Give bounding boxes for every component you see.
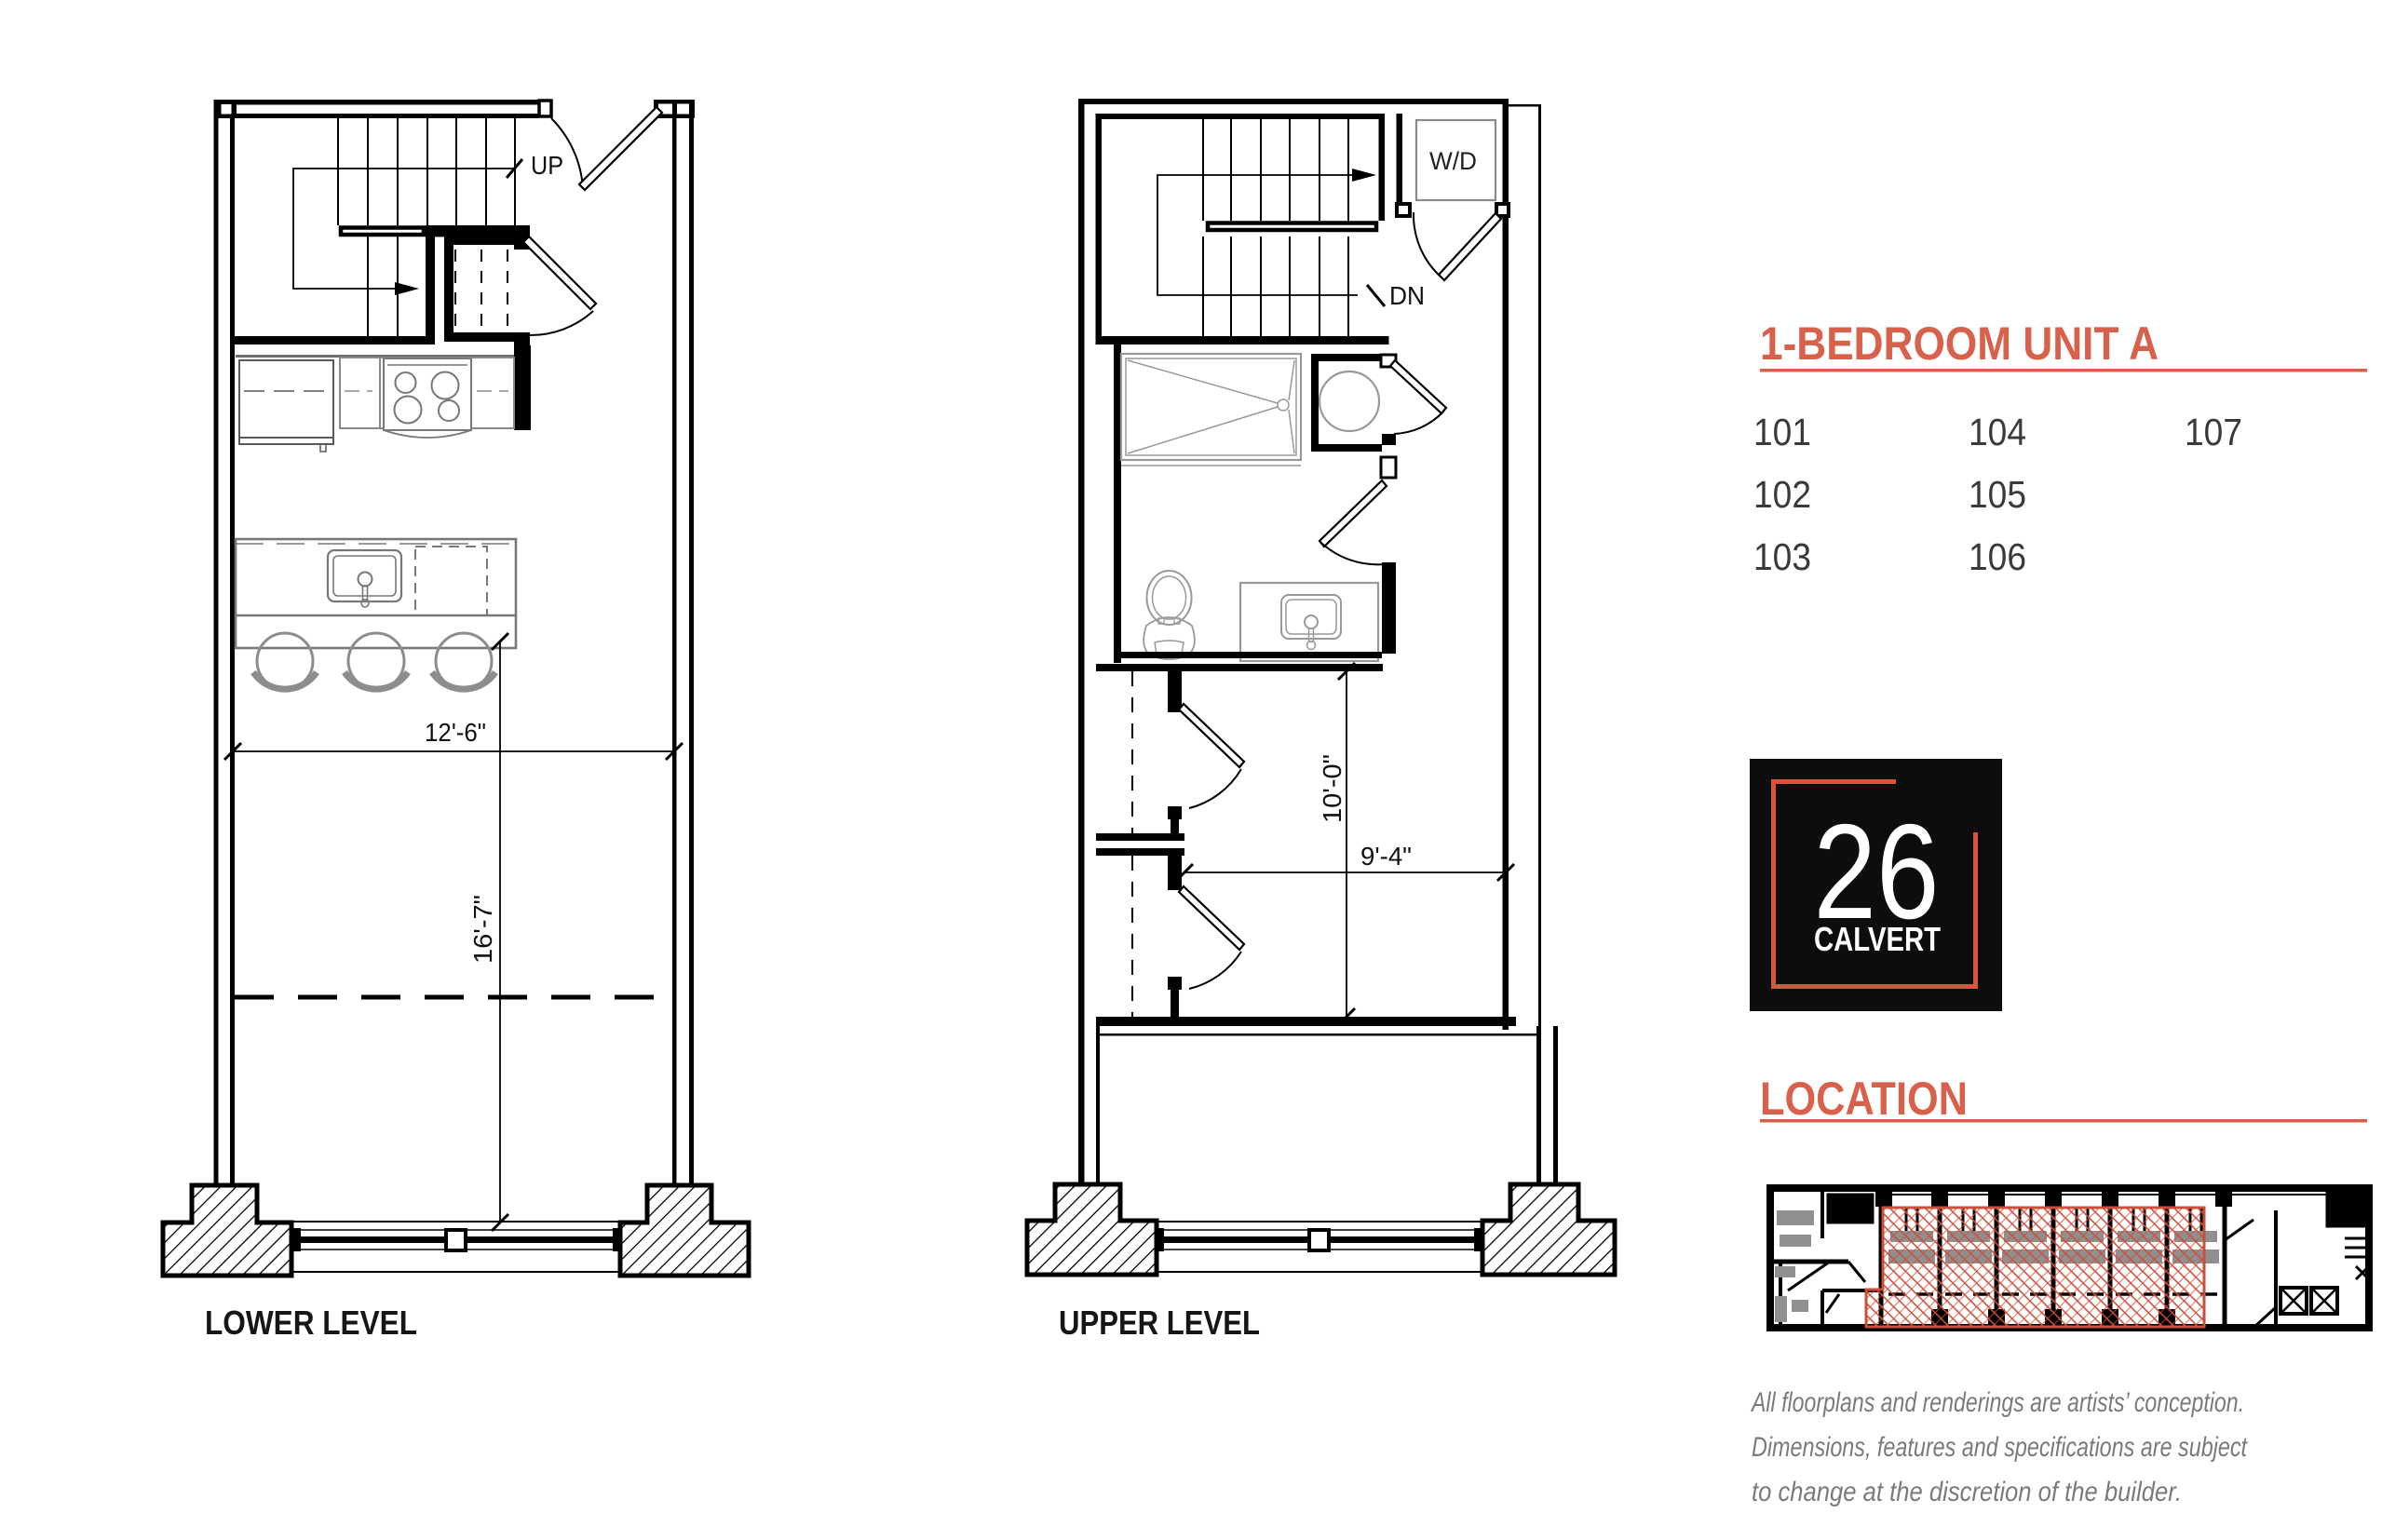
svg-text:LOCATION: LOCATION <box>1760 1073 1968 1125</box>
svg-text:106: 106 <box>1969 535 2026 578</box>
svg-text:Dimensions, features and speci: Dimensions, features and specifications … <box>1752 1432 2248 1463</box>
svg-text:105: 105 <box>1969 473 2026 516</box>
svg-text:103: 103 <box>1753 535 1811 578</box>
svg-text:16'-7": 16'-7" <box>468 895 497 964</box>
svg-text:101: 101 <box>1753 411 1811 453</box>
svg-text:UPPER LEVEL: UPPER LEVEL <box>1059 1304 1260 1342</box>
svg-text:DN: DN <box>1389 281 1425 310</box>
svg-text:107: 107 <box>2185 411 2242 453</box>
svg-text:102: 102 <box>1753 473 1811 516</box>
svg-text:9'-4": 9'-4" <box>1360 842 1412 871</box>
svg-text:W/D: W/D <box>1429 147 1477 175</box>
svg-text:LOWER LEVEL: LOWER LEVEL <box>205 1304 417 1342</box>
svg-text:1-BEDROOM UNIT A: 1-BEDROOM UNIT A <box>1760 317 2159 370</box>
svg-text:12'-6": 12'-6" <box>425 718 486 747</box>
svg-text:to change at the discretion of: to change at the discretion of the build… <box>1752 1477 2182 1507</box>
svg-text:CALVERT: CALVERT <box>1814 920 1941 958</box>
svg-text:All floorplans and renderings: All floorplans and renderings are artist… <box>1750 1387 2244 1418</box>
svg-text:UP: UP <box>531 151 563 180</box>
svg-text:104: 104 <box>1969 411 2026 453</box>
svg-text:10'-0": 10'-0" <box>1318 754 1347 823</box>
